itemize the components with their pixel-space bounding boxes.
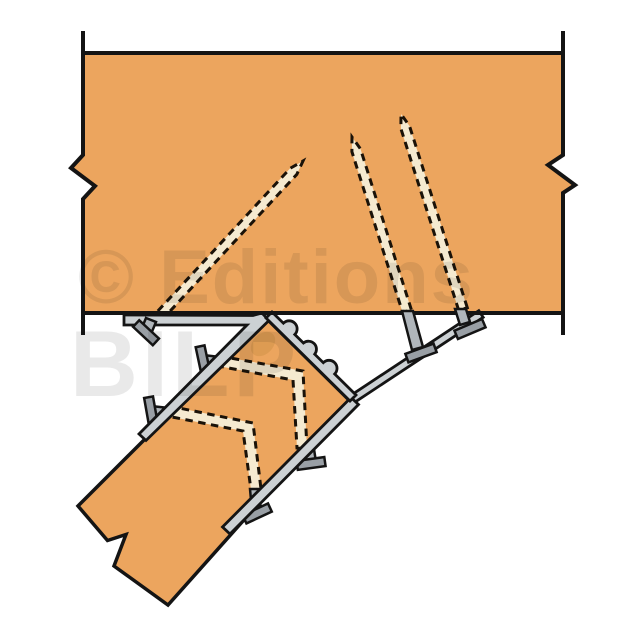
screw-shank bbox=[402, 311, 423, 350]
screw-head-strap-right-1 bbox=[402, 311, 437, 362]
header-beam bbox=[71, 53, 575, 313]
screw-shank bbox=[455, 309, 470, 325]
joist-hanger-diagram bbox=[0, 0, 640, 640]
illustration-canvas: © Editions BILP bbox=[0, 0, 640, 640]
screw-head-strap-left bbox=[133, 318, 159, 345]
header-beam-wood bbox=[71, 53, 575, 313]
